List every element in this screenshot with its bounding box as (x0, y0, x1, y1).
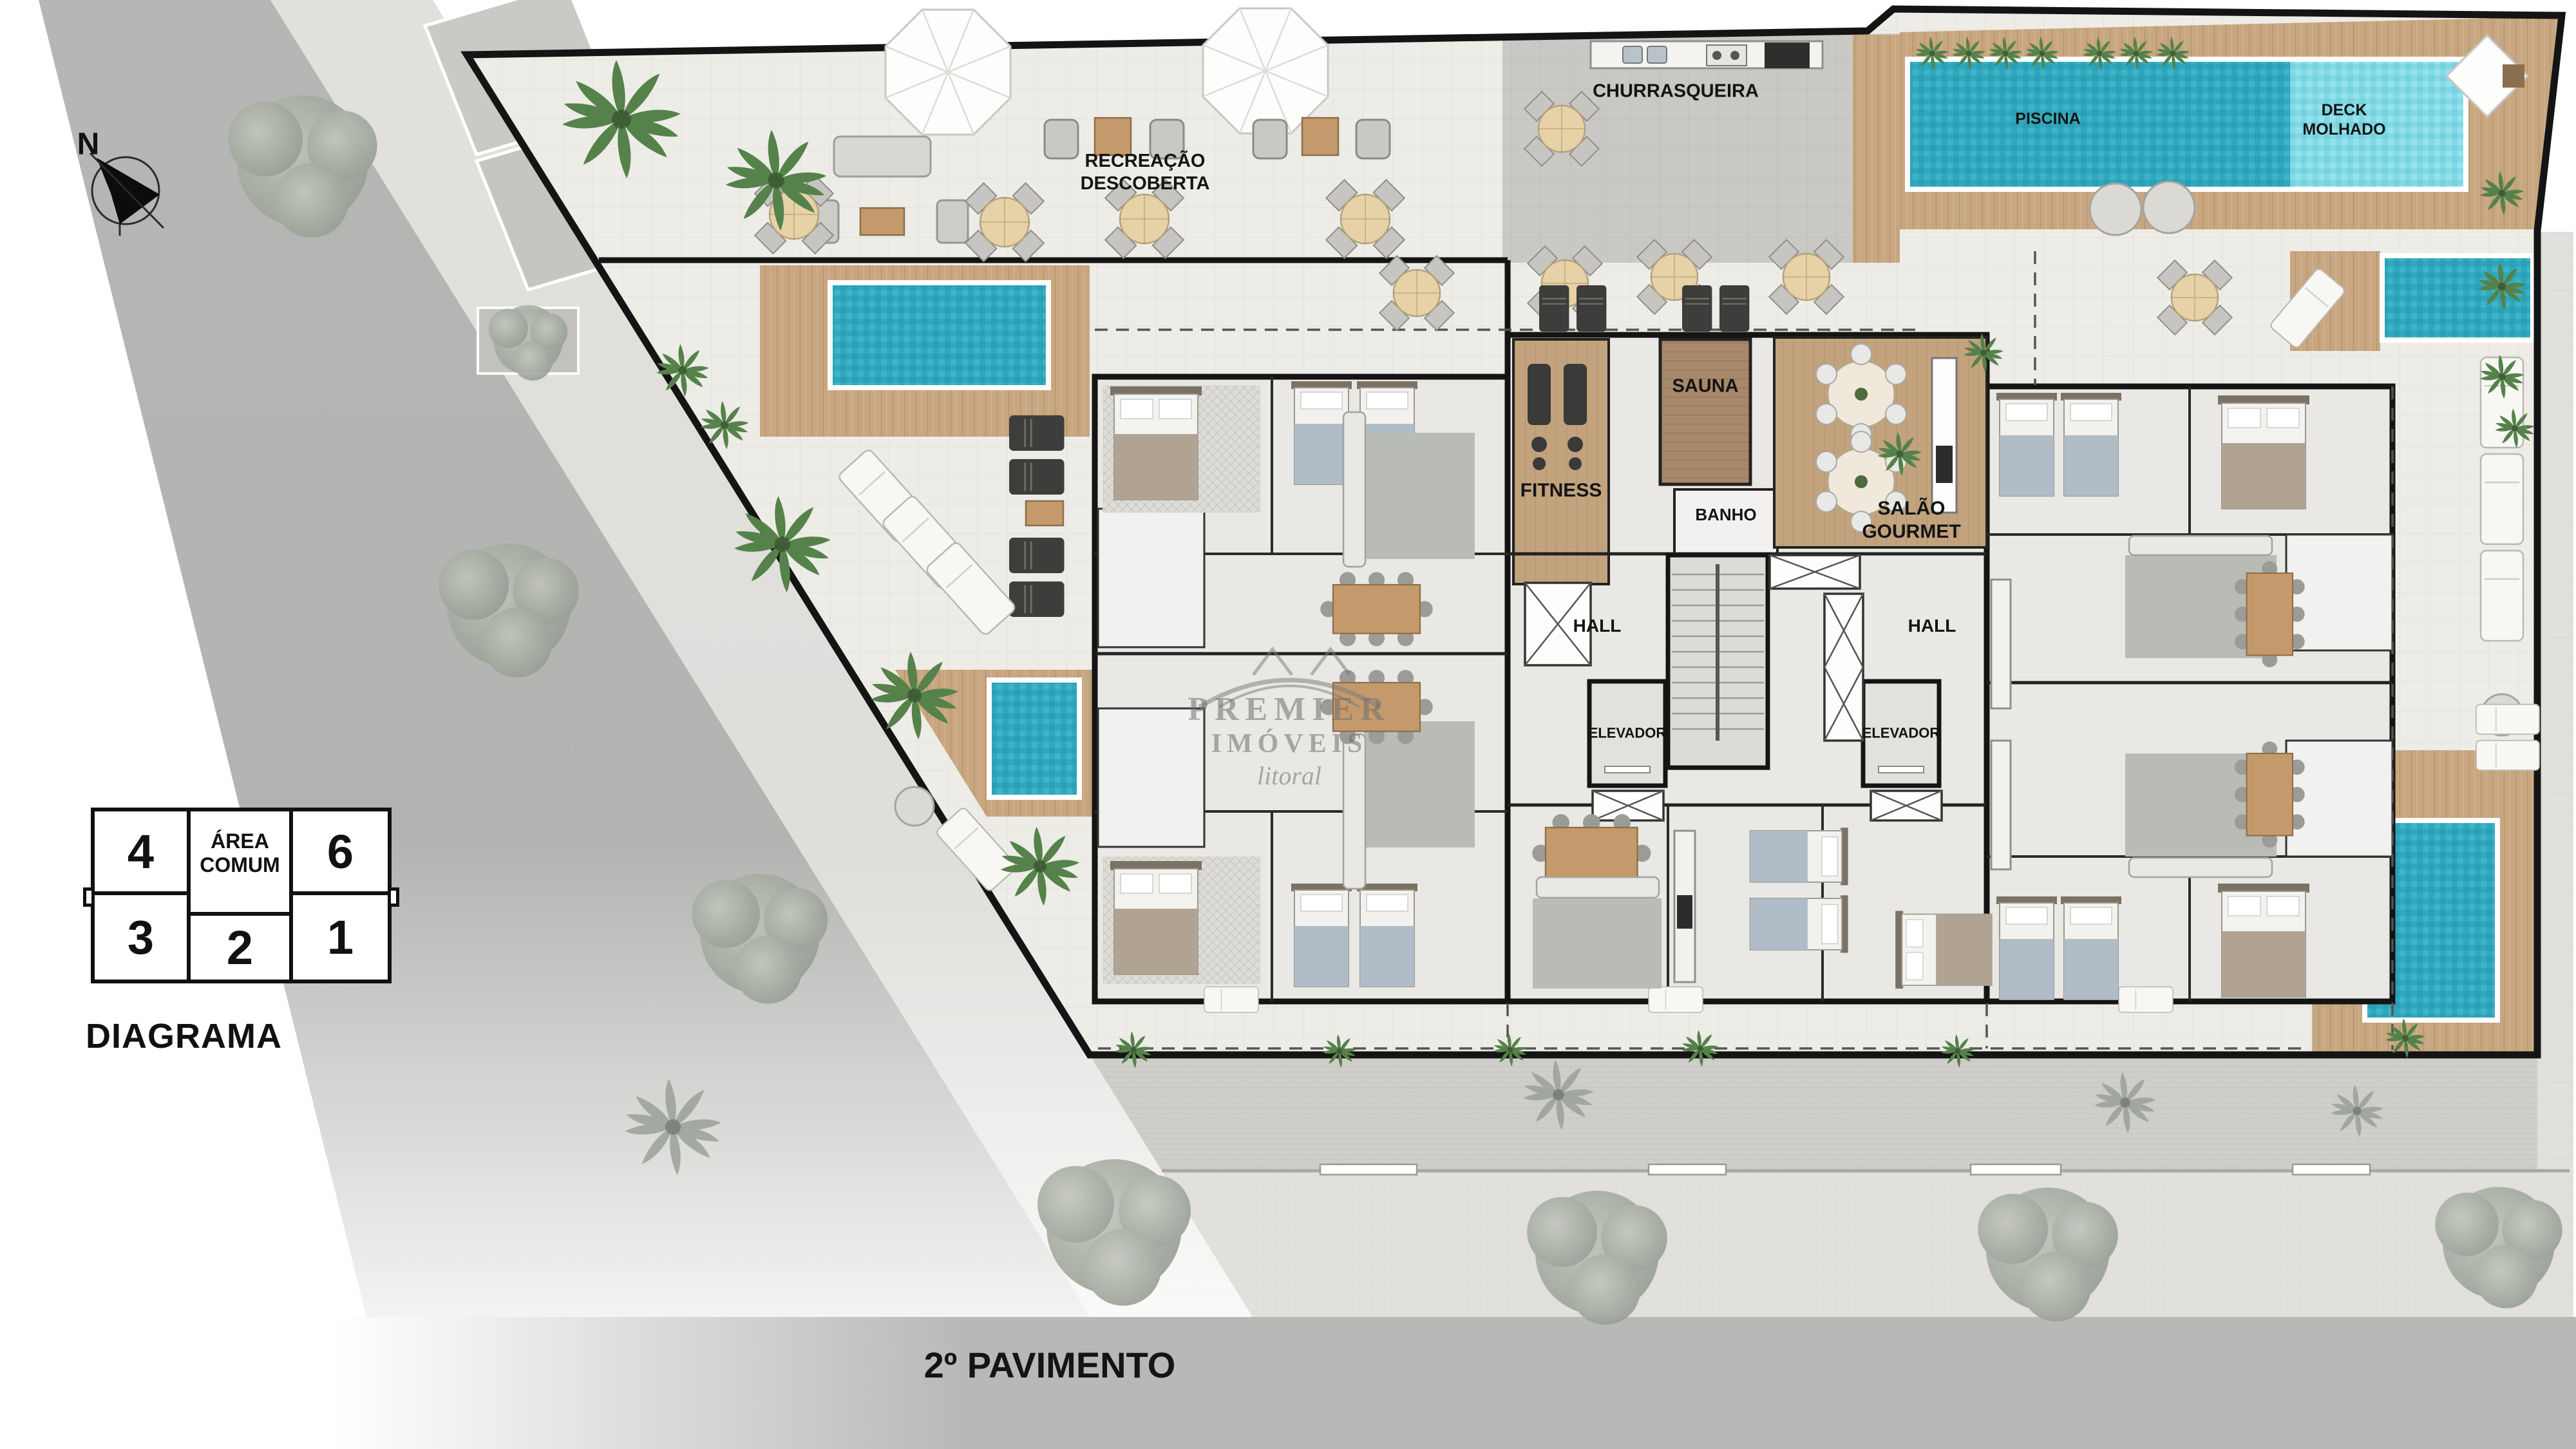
label-deck-line1: DECK (2302, 100, 2385, 120)
label-fitness: FITNESS (1520, 480, 1602, 502)
label-salao-line2: GOURMET (1862, 520, 1960, 544)
legend-cell-unit-2: 2 (187, 912, 293, 983)
watermark-line2: IMÓVEIS (1188, 728, 1391, 759)
watermark: PREMIER IMÓVEIS litoral (1188, 690, 1391, 791)
label-hall-left: HALL (1573, 616, 1622, 636)
label-elevador-left: ELEVADOR (1589, 724, 1667, 741)
legend-notch-left (83, 887, 95, 907)
lap-pool (828, 280, 1051, 390)
label-churrasqueira: CHURRASQUEIRA (1593, 80, 1759, 102)
sidewalk-right (2537, 232, 2573, 1317)
floor-label: 2º PAVIMENTO (924, 1345, 1176, 1386)
sauna-floor (1660, 339, 1750, 484)
label-hall-right: HALL (1908, 616, 1956, 636)
label-recreacao: RECREAÇÃO DESCOBERTA (1081, 150, 1210, 195)
label-sauna: SAUNA (1672, 375, 1738, 397)
watermark-line3: litoral (1188, 761, 1391, 791)
label-recreacao-line1: RECREAÇÃO (1081, 150, 1210, 173)
label-deck-molhado: DECK MOLHADO (2302, 100, 2385, 139)
legend-cell-unit-4: 4 (91, 808, 191, 895)
legend-cell-area-comum: ÁREA COMUM (187, 808, 293, 916)
label-recreacao-line2: DESCOBERTA (1081, 173, 1210, 195)
sidewalk-bottom (1162, 1171, 2573, 1317)
street-bottom (193, 1317, 2576, 1449)
legend-cell-unit-3: 3 (91, 891, 191, 983)
watermark-line1: PREMIER (1188, 690, 1391, 728)
label-salao-gourmet: SALÃO GOURMET (1862, 497, 1960, 544)
legend-diagram: 4 ÁREA COMUM 6 3 2 1 (91, 808, 392, 983)
floor-plan-page: RECREAÇÃO DESCOBERTA CHURRASQUEIRA PISCI… (0, 0, 2576, 1449)
small-pool-left (987, 677, 1082, 800)
label-elevador-right: ELEVADOR (1862, 724, 1940, 741)
label-banho: BANHO (1695, 506, 1756, 525)
churrasqueira-counter (1591, 41, 1823, 68)
label-deck-line2: MOLHADO (2302, 120, 2385, 139)
label-salao-line1: SALÃO (1862, 497, 1960, 520)
label-piscina: PISCINA (2015, 110, 2080, 129)
legend-area-line1: ÁREA (200, 829, 279, 853)
pavement-bottom (1090, 1055, 2537, 1171)
compass-north-label: N (77, 127, 100, 162)
legend-area-line2: COMUM (200, 853, 279, 877)
legend-notch-right (388, 887, 399, 907)
legend-cell-unit-1: 1 (289, 891, 392, 983)
legend-cell-unit-6: 6 (289, 808, 392, 895)
legend-title: DIAGRAMA (86, 1016, 282, 1056)
